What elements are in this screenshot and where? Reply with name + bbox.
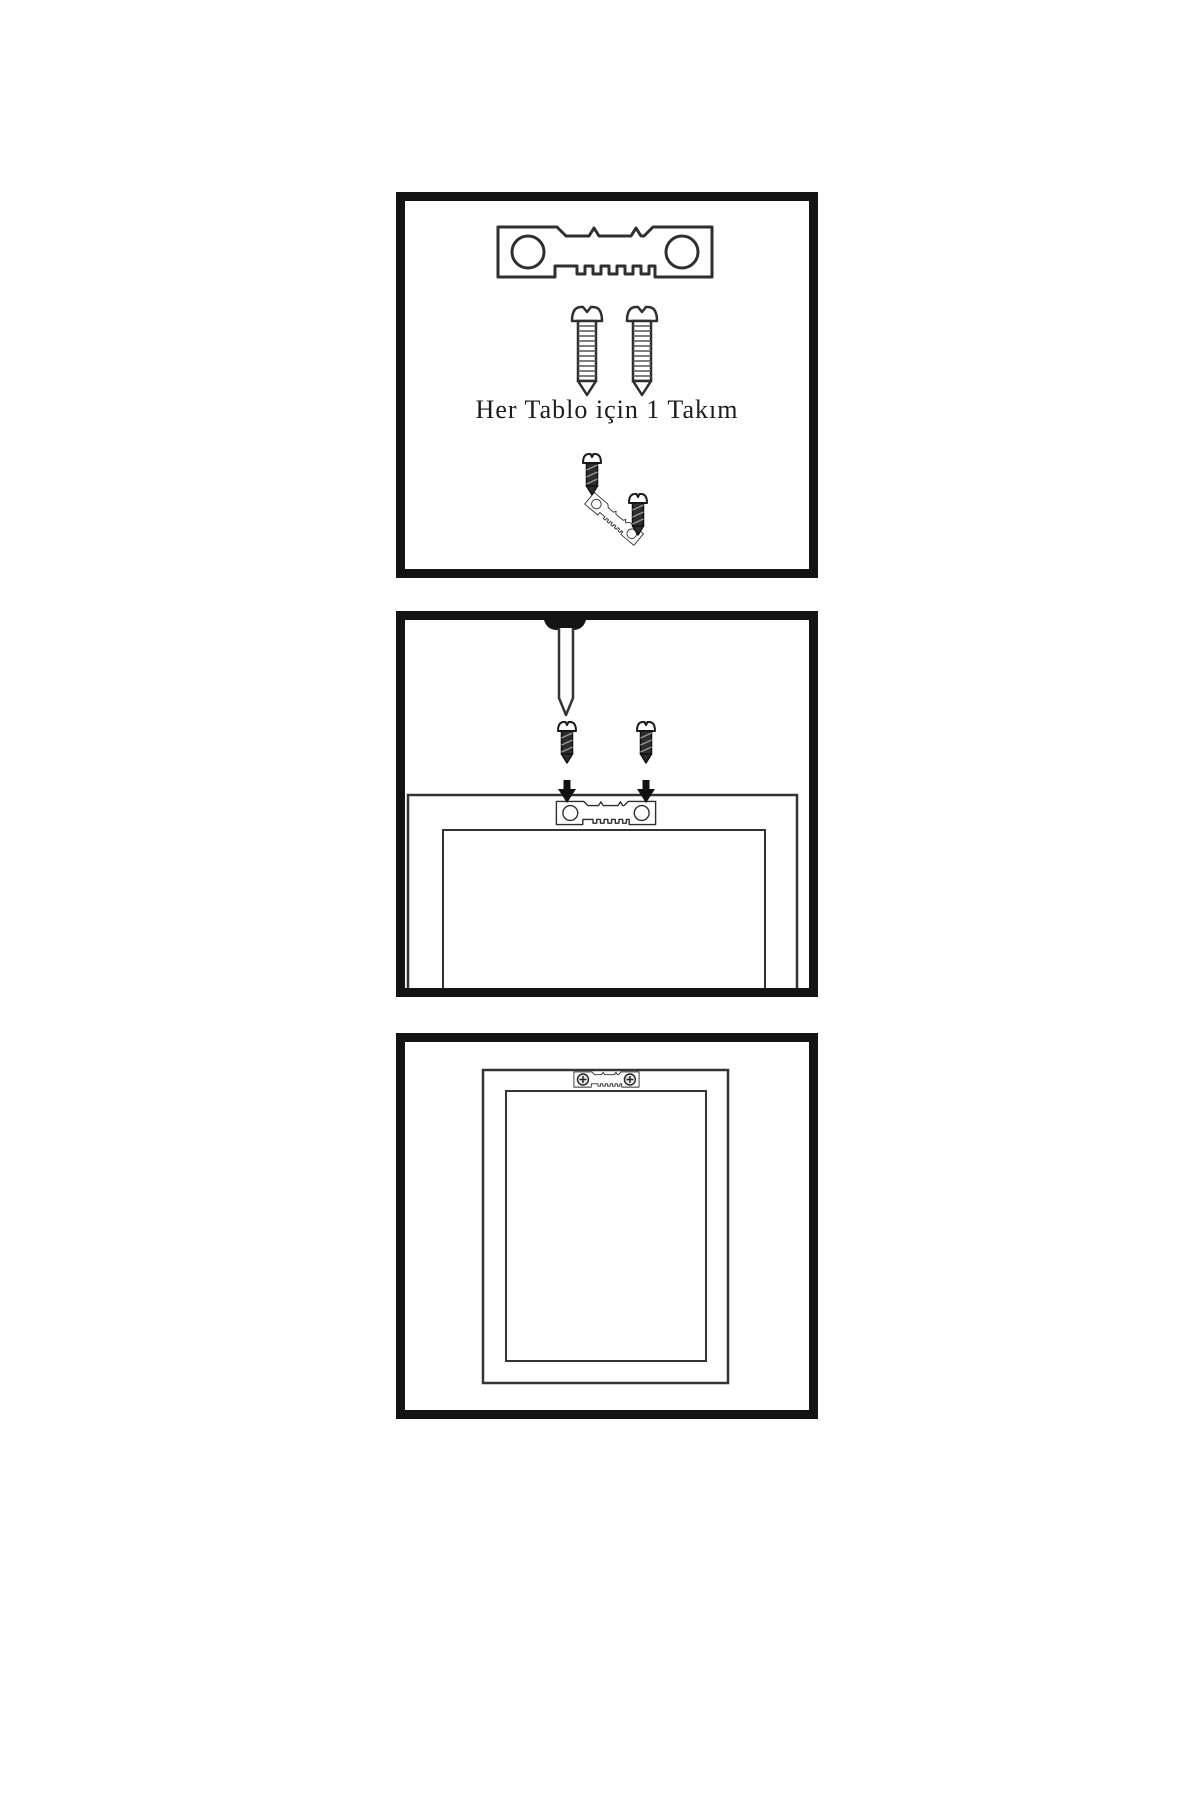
instruction-sheet: Her Tablo için 1 Takım [0,0,1200,1800]
mounted-frame-illustration [405,1042,809,1410]
step-2-panel-mounting [396,611,818,997]
frame-back-icon [483,1070,728,1383]
step-3-panel-result [396,1033,818,1419]
dark-screw-icon [637,722,655,763]
screw-icon [627,307,657,395]
dark-screw-icon [558,722,576,763]
phillips-screw-head-icon [624,1074,635,1085]
brand-logo: ENK WALL ART [0,1470,1200,1690]
kit-caption: Her Tablo için 1 Takım [405,395,809,425]
nail-icon [544,620,586,715]
step-1-panel-hardware-kit: Her Tablo için 1 Takım [396,192,818,578]
dark-screw-icon [583,454,601,495]
hardware-kit-illustration [405,201,809,569]
frame-back-icon [408,795,797,988]
phillips-screw-head-icon [578,1074,589,1085]
mounting-illustration [405,620,809,988]
sawtooth-hanger-icon [498,227,712,277]
screw-icon [572,307,602,395]
